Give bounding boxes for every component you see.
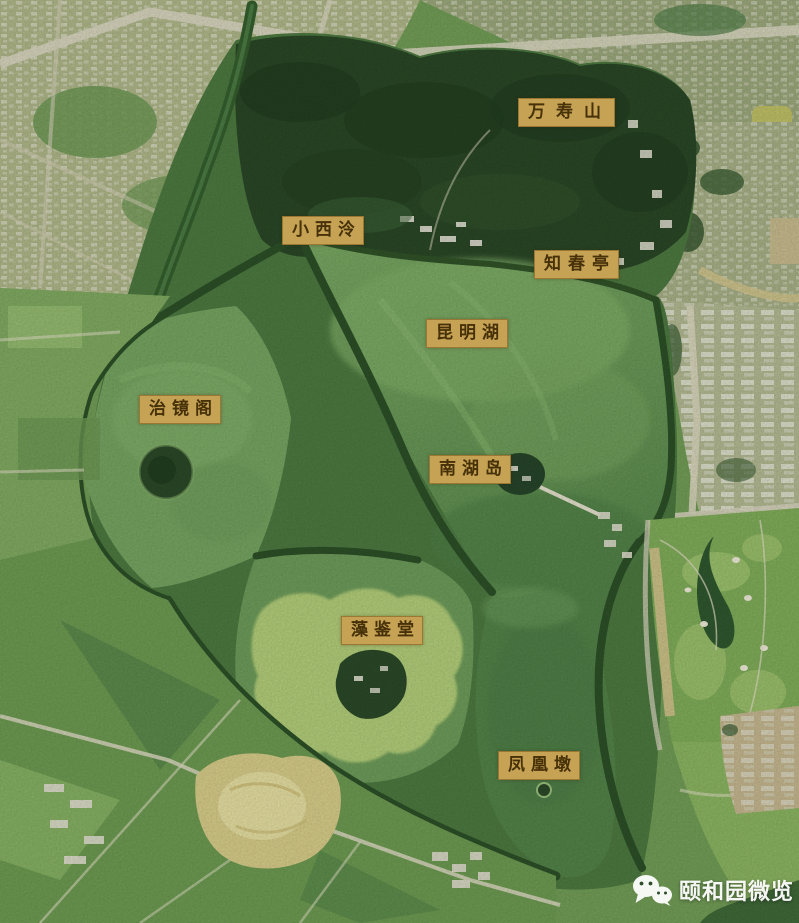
map-label-2: 小西泠 (282, 216, 364, 245)
summer-palace-satellite-map: 万寿山小西泠知春亭昆明湖治镜阁南湖岛藻鉴堂凤凰墩 颐和园微览 (0, 0, 799, 923)
map-label-8: 凤凰墩 (498, 751, 580, 780)
map-label-5: 治镜阁 (139, 395, 221, 424)
map-label-6: 南湖岛 (429, 455, 511, 484)
map-label-3: 知春亭 (534, 250, 619, 279)
watermark: 颐和园微览 (631, 873, 794, 907)
map-label-4: 昆明湖 (426, 319, 508, 348)
wechat-logo-icon (631, 873, 673, 907)
map-label-7: 藻鉴堂 (341, 616, 423, 645)
watermark-text: 颐和园微览 (679, 874, 794, 906)
map-label-1: 万寿山 (518, 98, 615, 127)
label-layer: 万寿山小西泠知春亭昆明湖治镜阁南湖岛藻鉴堂凤凰墩 (0, 0, 799, 923)
